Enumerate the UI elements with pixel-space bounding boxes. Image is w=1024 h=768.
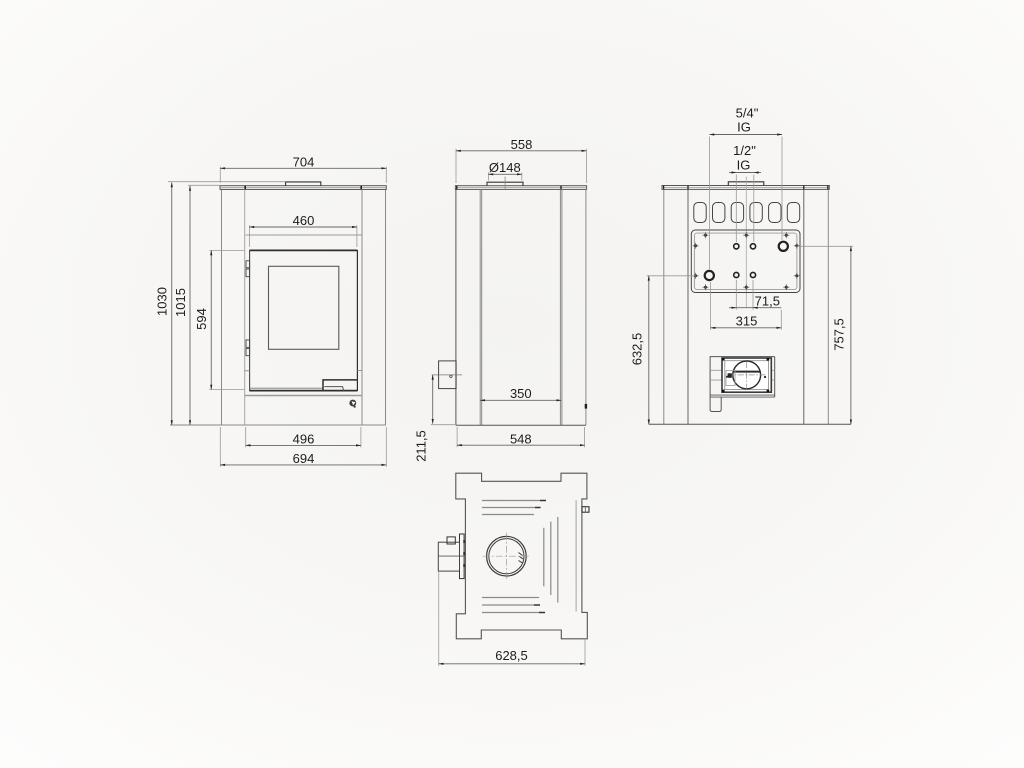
svg-text:632,5: 632,5 xyxy=(630,333,645,366)
svg-text:757,5: 757,5 xyxy=(832,318,847,351)
svg-text:548: 548 xyxy=(510,431,532,446)
svg-text:1/2": 1/2" xyxy=(733,143,756,158)
svg-text:211,5: 211,5 xyxy=(413,430,428,462)
svg-text:496: 496 xyxy=(293,432,315,447)
svg-text:315: 315 xyxy=(736,314,758,329)
svg-text:350: 350 xyxy=(510,386,532,401)
svg-text:5/4": 5/4" xyxy=(736,106,759,121)
svg-text:1015: 1015 xyxy=(173,288,188,317)
svg-text:IG: IG xyxy=(737,158,751,173)
svg-text:704: 704 xyxy=(293,154,315,169)
svg-text:694: 694 xyxy=(293,451,315,466)
svg-text:628,5: 628,5 xyxy=(495,648,528,663)
svg-text:Ø148: Ø148 xyxy=(489,160,521,175)
svg-text:IG: IG xyxy=(737,120,751,135)
svg-text:594: 594 xyxy=(194,308,209,330)
svg-text:71,5: 71,5 xyxy=(755,294,780,309)
svg-text:460: 460 xyxy=(293,213,315,228)
svg-text:558: 558 xyxy=(511,137,533,152)
svg-text:1030: 1030 xyxy=(155,287,170,316)
